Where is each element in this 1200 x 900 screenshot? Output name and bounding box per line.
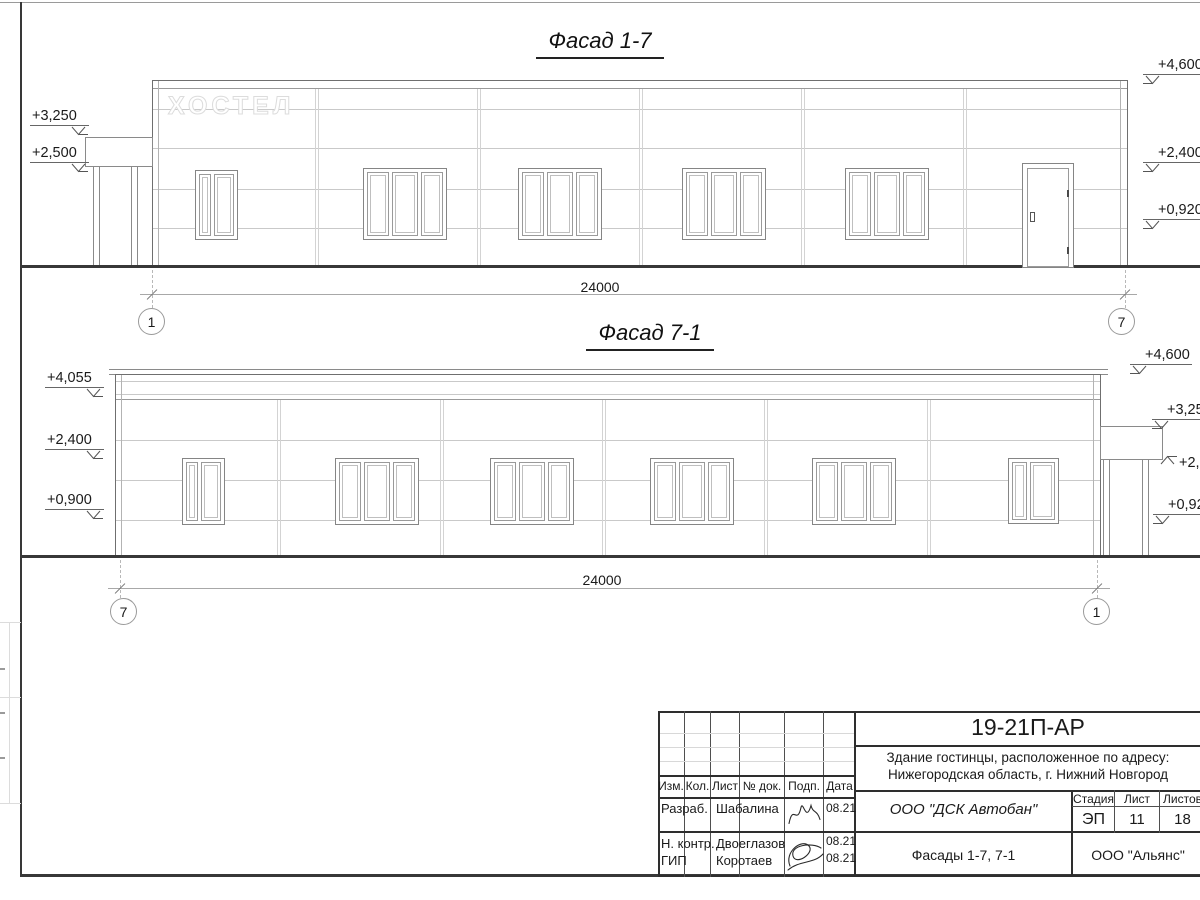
level-mark-icon [86,510,103,520]
window-pane [686,172,708,236]
window-pane [711,172,737,236]
window [195,170,238,240]
sheet-frame-top [0,2,1200,3]
facade-7-1-building [115,374,1101,557]
window [682,168,766,240]
sheets-total: 18 [1160,811,1200,828]
title-block-line [658,775,855,777]
fascia-line [116,381,1100,382]
title-block-line [660,761,854,762]
axis-bubble: 1 [1083,598,1110,625]
level-mark: +4,055 [45,370,104,388]
window-pane [816,462,838,521]
name-korotaev: Коротаев [716,853,772,868]
window-pane [393,462,415,521]
corner-trim [1120,81,1121,267]
siding-line [116,480,1100,481]
date-nkontr: 08.21 [826,834,855,848]
title-block-line [1072,806,1200,807]
canopy-post [131,166,138,267]
level-mark: +2,500 [30,145,89,163]
window [1008,458,1059,524]
level-mark-value: +0,900 [45,492,104,510]
facade-1-7-title: Фасад 1-7 [450,28,750,59]
level-mark: +0,900 [45,492,104,510]
fascia-line [116,399,1100,400]
panel-joint [602,400,606,556]
title-block-line [710,711,711,877]
extension-line [152,270,153,308]
corner-trim [158,81,159,267]
level-mark-value: +2,500 [1177,455,1200,471]
panel-joint [801,89,805,267]
level-mark-value: +3,250 [1152,402,1200,420]
canopy-post [1142,460,1149,556]
level-mark-value: +3,250 [30,108,89,126]
name-shabalina: Шабалина [716,801,779,816]
window-pane [654,462,676,521]
role-razrab: Разраб. [661,801,708,816]
window-pane [548,462,570,521]
window [845,168,929,240]
signature-icon [786,799,822,830]
level-mark: +3,250 [1152,402,1200,420]
left-margin-stamp [0,757,5,759]
fascia-line [116,394,1100,395]
design-org: ООО "ДСК Автобан" [856,801,1071,818]
col-header-date: Дата [824,779,855,793]
window-pane [849,172,871,236]
window-pane [1030,462,1055,520]
axis-bubble: 1 [138,308,165,335]
level-mark: +0,920 [1143,202,1200,220]
left-margin-stamp [0,622,21,623]
title-block-line [855,745,1200,747]
level-mark-icon [1143,163,1160,173]
level-mark-value: +4,600 [1143,57,1200,75]
col-header-list: Лист [711,779,739,793]
dimension-label: 24000 [550,572,654,588]
canopy-slab [85,137,153,167]
level-mark-value: +0,920 [1143,202,1200,220]
window [518,168,602,240]
panel-joint [927,400,931,556]
level-mark-icon [1160,455,1177,465]
window-pane [519,462,545,521]
level-mark-value: +2,400 [45,432,104,450]
level-mark-icon [1143,75,1160,85]
window [812,458,896,525]
canopy-slab [1100,426,1163,460]
left-margin-stamp [0,803,21,804]
door-handle-icon [1030,212,1035,222]
left-margin-stamp [0,697,21,698]
title-block-line [660,747,854,748]
level-mark-icon [1153,515,1170,525]
role-nkontr: Н. контр. [661,836,715,851]
stage-label: Стадия [1073,792,1114,806]
level-mark: +4,600 [1130,347,1192,365]
left-margin-stamp [0,712,5,714]
extension-line [120,560,121,598]
door-hinge-icon [1067,190,1069,197]
panel-joint [315,89,319,267]
window-pane [576,172,598,236]
window-pane [679,462,705,521]
sheets-label: Листов [1160,792,1200,806]
corner-trim [121,375,122,556]
ground-line [20,555,1200,558]
window-pane [841,462,867,521]
canopy-post [93,166,100,267]
level-mark: +0,920 [1153,497,1200,515]
level-mark: +2,400 [1143,145,1200,163]
window [650,458,734,525]
left-margin-stamp [9,622,10,804]
level-mark-icon [71,163,88,173]
door-leaf [1027,168,1069,267]
window [335,458,419,525]
window-pane [740,172,762,236]
window-pane [201,462,221,521]
level-mark-icon [71,126,88,136]
window-pane [708,462,730,521]
extension-line [1125,270,1126,308]
object-name-line1: Здание гостинцы, расположенное по адресу… [856,750,1200,765]
window-pane [199,174,211,236]
window-pane [494,462,516,521]
level-mark-value: +2,400 [1143,145,1200,163]
window-pane [547,172,573,236]
level-mark-value: +0,920 [1153,497,1200,515]
window-pane [1012,462,1027,520]
window-pane [339,462,361,521]
date-gip: 08.21 [826,851,855,865]
window-pane [903,172,925,236]
window-pane [392,172,418,236]
door-hinge-icon [1067,247,1069,254]
window-pane [874,172,900,236]
col-header-izm: Изм. [658,779,684,793]
sheet-frame-left [20,2,22,877]
sheet-number: 11 [1115,811,1159,828]
level-mark-icon [86,450,103,460]
axis-bubble: 7 [1108,308,1135,335]
dimension-line [108,588,1110,589]
extension-line [1097,560,1098,598]
window [182,458,225,525]
object-name-line2: Нижегородская область, г. Нижний Новгоро… [856,767,1200,782]
level-mark: +3,250 [30,108,89,126]
level-mark: +2,400 [45,432,104,450]
panel-joint [477,89,481,267]
date-razrab: 08.21 [826,801,855,815]
panel-joint [639,89,643,267]
drawing-name: Фасады 1-7, 7-1 [856,847,1071,863]
corner-trim [1093,375,1094,556]
level-mark-icon [86,388,103,398]
level-mark-icon [1143,220,1160,230]
title-block-line [658,831,1200,833]
panel-joint [277,400,281,556]
col-header-doc: № док. [740,779,784,793]
level-mark-value: +2,500 [30,145,89,163]
level-mark-icon [1152,420,1169,430]
sheet-label: Лист [1115,792,1159,806]
title-block-line [660,733,854,734]
window [490,458,574,525]
panel-joint [764,400,768,556]
level-mark-value: +4,055 [45,370,104,388]
signature-icon [782,830,826,874]
level-mark: +2,500 [1160,455,1200,471]
drawing-sheet: Фасад 1-7 ХОСТЕЛ [0,0,1200,900]
axis-bubble: 7 [110,598,137,625]
doc-code: 19-21П-АР [856,714,1200,741]
panel-joint [963,89,967,267]
panel-joint [440,400,444,556]
window-pane [421,172,443,236]
window-pane [186,462,198,521]
hostel-sign: ХОСТЕЛ [168,92,294,121]
level-mark-icon [1130,365,1147,375]
window-pane [870,462,892,521]
role-gip: ГИП [661,853,687,868]
entrance-door [1022,163,1074,268]
facade-1-7-title-text: Фасад 1-7 [536,28,663,59]
window-pane [364,462,390,521]
col-header-kol: Кол. [685,779,710,793]
siding-line [116,440,1100,441]
window-pane [522,172,544,236]
window [363,168,447,240]
dimension-label: 24000 [548,279,652,295]
level-mark: +4,600 [1143,57,1200,75]
stage-value: ЭП [1073,811,1114,829]
canopy-post [1103,460,1110,556]
title-block-line [658,797,855,799]
level-mark-value: +4,600 [1130,347,1192,365]
facade-7-1-title-text: Фасад 7-1 [586,320,713,351]
window-pane [367,172,389,236]
facade-7-1-title: Фасад 7-1 [500,320,800,351]
col-header-sign: Подп. [785,779,823,793]
contractor-org: ООО "Альянс" [1073,847,1200,863]
left-margin-stamp [0,668,5,670]
name-dvoeglazov: Двоеглазов [716,836,785,851]
window-pane [214,174,234,236]
siding-line [116,520,1100,521]
